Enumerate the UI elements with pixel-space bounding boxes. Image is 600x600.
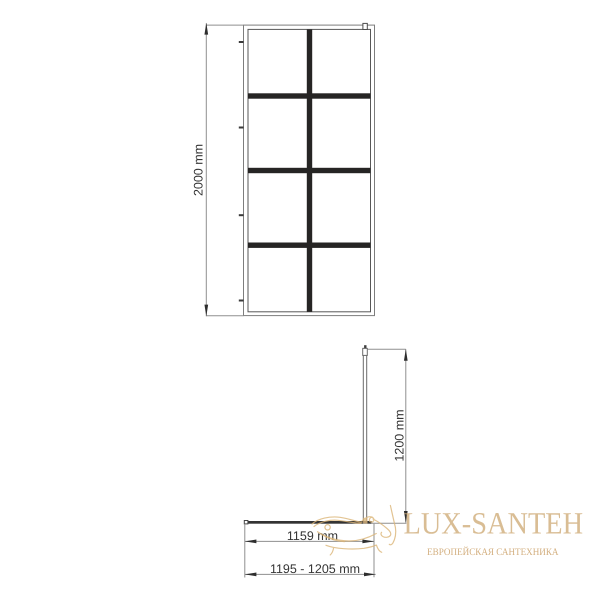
svg-text:2000 mm: 2000 mm [191, 144, 205, 196]
svg-text:1200 mm: 1200 mm [392, 409, 406, 461]
svg-text:ЕВРОПЕЙСКАЯ САНТЕХНИКА: ЕВРОПЕЙСКАЯ САНТЕХНИКА [427, 546, 559, 558]
svg-text:1195 - 1205 mm: 1195 - 1205 mm [270, 562, 360, 576]
svg-text:LUX-SANTEH: LUX-SANTEH [404, 506, 584, 541]
svg-text:1159 mm: 1159 mm [287, 529, 338, 543]
